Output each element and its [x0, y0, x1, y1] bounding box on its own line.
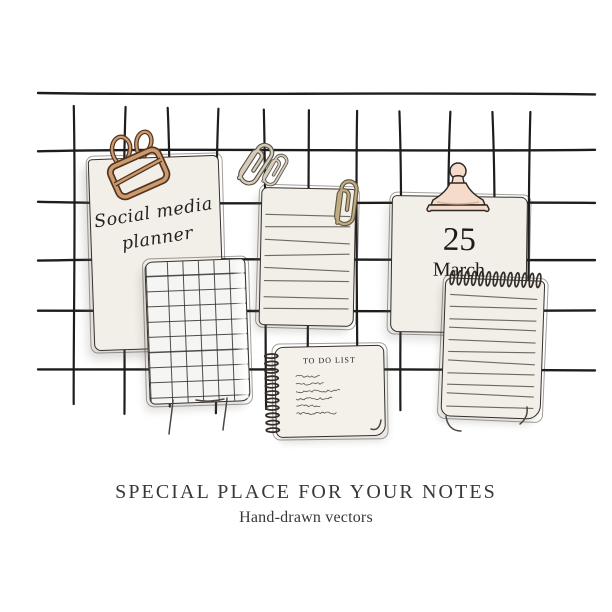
illustration-canvas: Social media planner [0, 0, 612, 612]
todo-notepad: TO DO LIST [261, 342, 387, 440]
spiral-coils-icon [443, 266, 548, 292]
lined-note [259, 187, 357, 327]
spiral-rings-icon [261, 350, 285, 436]
footer-caption: SPECIAL PLACE FOR YOUR NOTES Hand-drawn … [0, 481, 612, 527]
ruled-lines [260, 188, 356, 326]
checkered-note [144, 258, 250, 405]
notebook-page [440, 277, 545, 419]
calendar-day: 25 [392, 222, 526, 259]
todo-title: TO DO LIST [275, 355, 383, 366]
ruled-lines [441, 278, 544, 418]
spiral-notebook [438, 266, 547, 422]
footer-title: SPECIAL PLACE FOR YOUR NOTES [0, 481, 612, 504]
todo-page: TO DO LIST [274, 345, 386, 438]
planner-text: Social media planner [88, 190, 224, 262]
footer-subtitle: Hand-drawn vectors [0, 509, 612, 527]
page-curl-highlight [232, 261, 248, 398]
handwritten-list [284, 370, 385, 432]
